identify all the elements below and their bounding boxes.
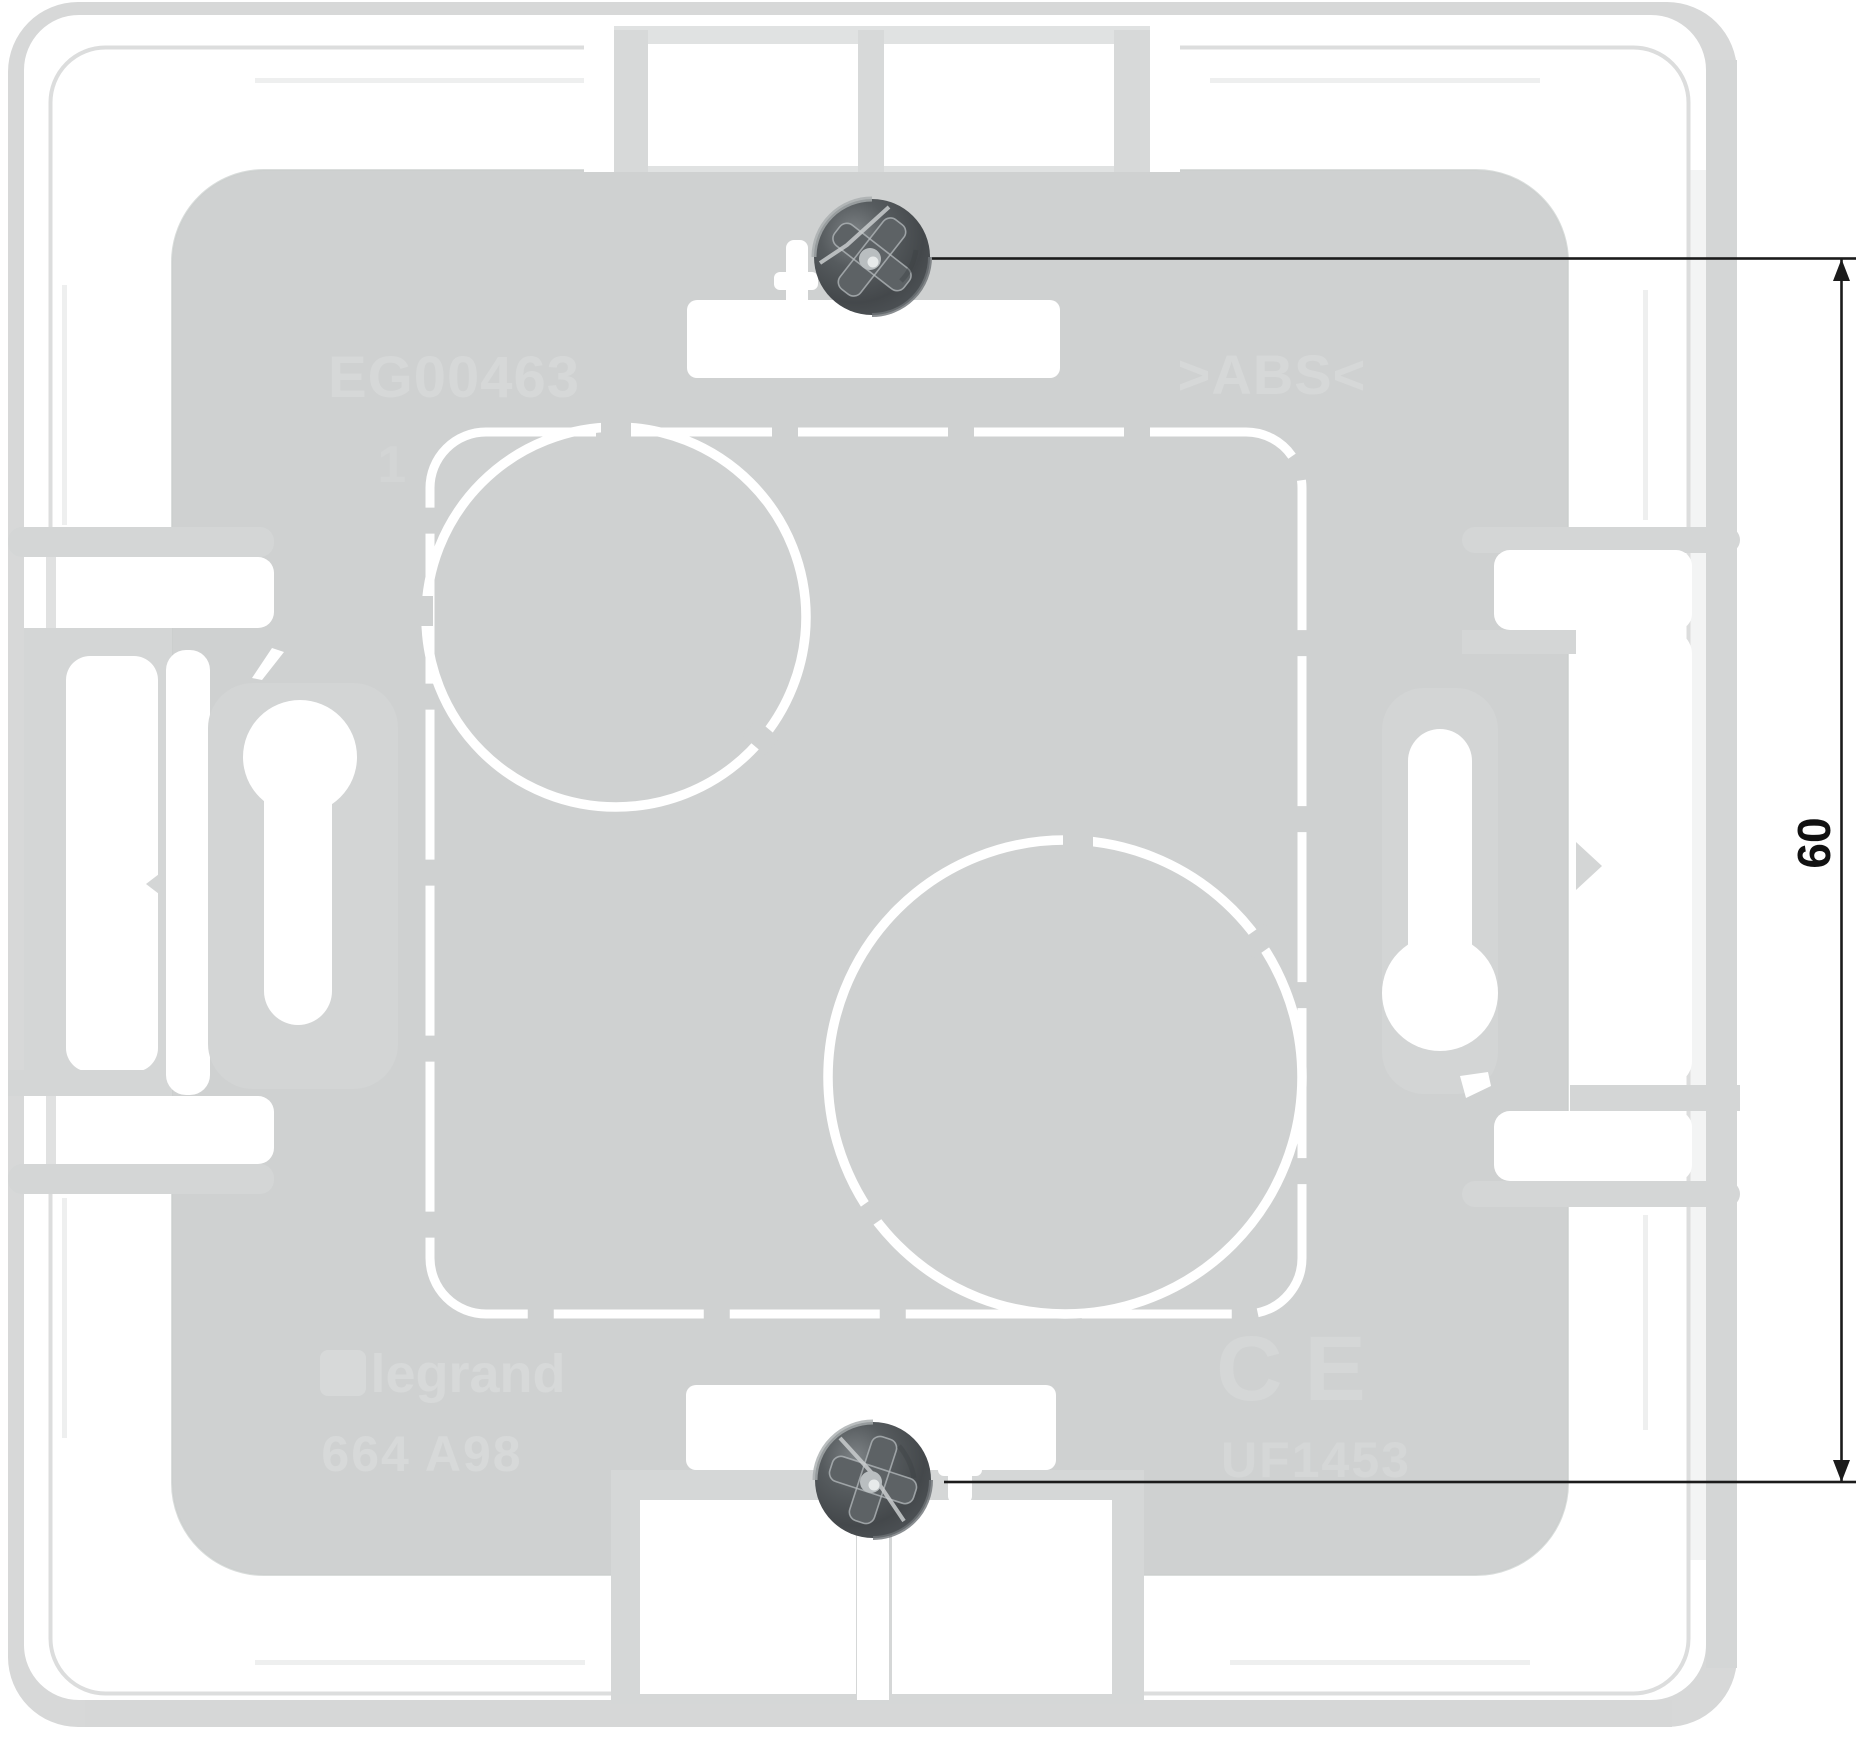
svg-text:1: 1 [378, 436, 407, 494]
svg-text:CE: CE [1216, 1318, 1388, 1420]
svg-text:UF1453: UF1453 [1221, 1432, 1411, 1488]
svg-text:>ABS<: >ABS< [1178, 343, 1367, 406]
svg-text:EG00463: EG00463 [328, 345, 580, 410]
svg-text:60: 60 [1788, 817, 1840, 868]
svg-text:664 A98: 664 A98 [321, 1426, 522, 1482]
svg-text:legrand: legrand [370, 1344, 565, 1404]
